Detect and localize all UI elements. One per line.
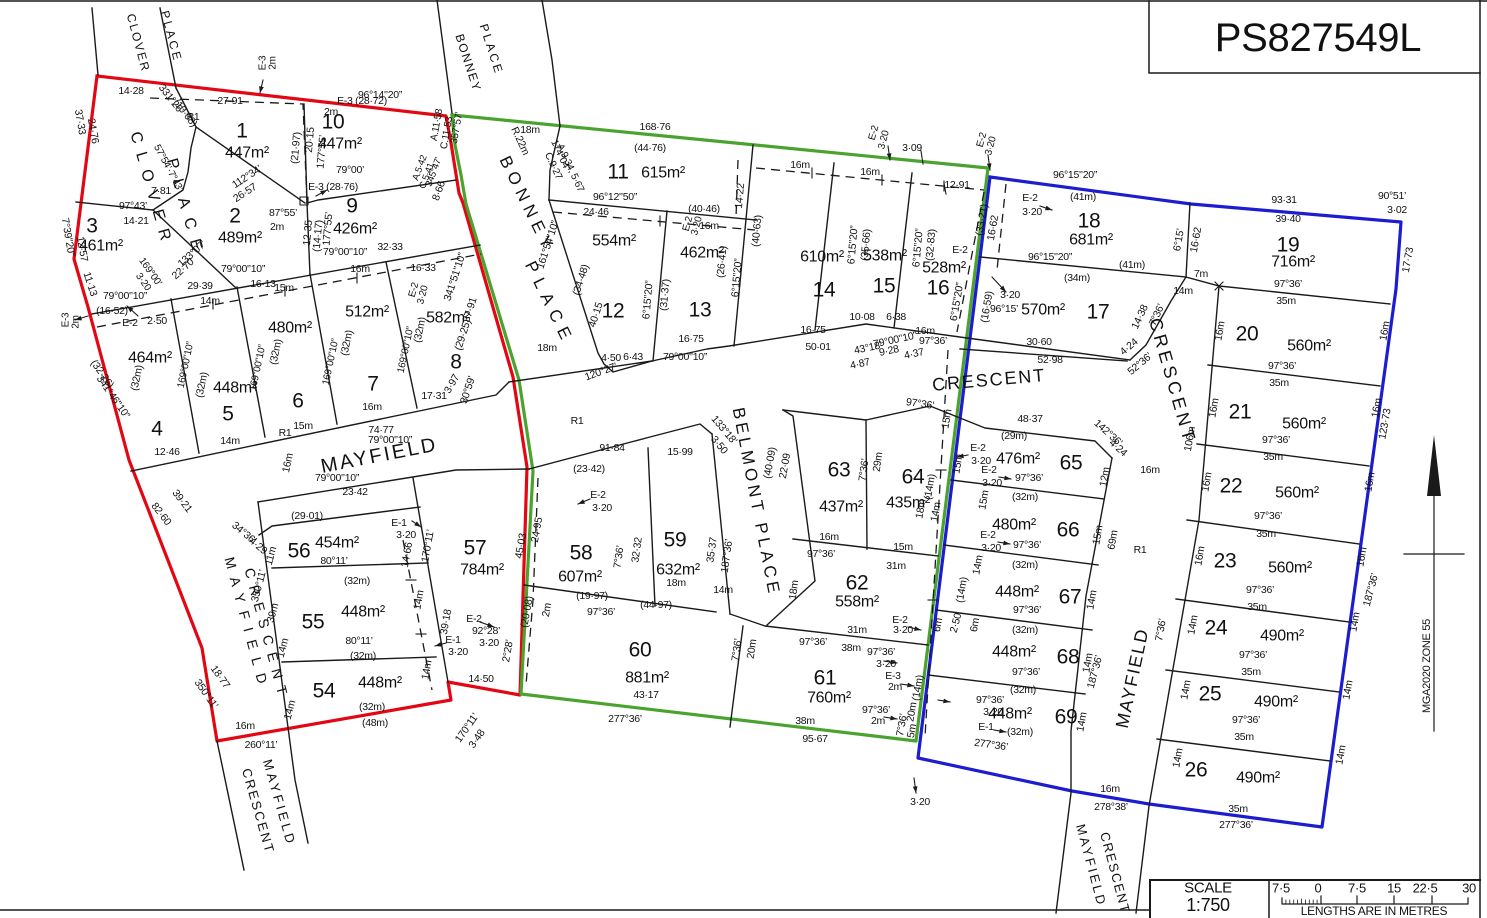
svg-text:27·91: 27·91: [217, 95, 243, 107]
svg-text:3·20: 3·20: [592, 502, 612, 514]
svg-text:278°38’: 278°38’: [1094, 801, 1128, 813]
svg-text:PS827549L: PS827549L: [1215, 16, 1421, 60]
svg-text:489m²: 489m²: [218, 230, 263, 247]
svg-text:(32m): (32m): [359, 701, 385, 713]
svg-text:6m: 6m: [968, 617, 982, 633]
svg-text:1:750: 1:750: [1186, 895, 1230, 915]
svg-text:15: 15: [1387, 881, 1401, 896]
svg-text:97°36’: 97°36’: [1246, 584, 1274, 596]
svg-text:E-2: E-2: [466, 613, 482, 625]
svg-text:6: 6: [292, 390, 303, 413]
svg-text:448m²: 448m²: [358, 675, 403, 692]
svg-text:448m²: 448m²: [341, 604, 386, 621]
svg-text:30: 30: [1462, 881, 1476, 896]
svg-text:(32m): (32m): [1010, 684, 1036, 696]
svg-text:3·20: 3·20: [983, 706, 1003, 718]
svg-text:15m: 15m: [274, 282, 294, 294]
svg-text:(32m): (32m): [344, 575, 370, 587]
svg-text:681m²: 681m²: [1069, 232, 1114, 249]
svg-text:21: 21: [1229, 401, 1252, 424]
svg-text:64: 64: [902, 466, 925, 489]
svg-text:16m: 16m: [1100, 783, 1120, 795]
svg-text:18m: 18m: [666, 577, 686, 589]
svg-text:32·33: 32·33: [377, 241, 403, 253]
svg-text:14·28: 14·28: [118, 85, 144, 97]
svg-text:16·75: 16·75: [800, 324, 826, 336]
svg-text:3·20: 3·20: [981, 542, 1001, 554]
svg-text:14·22: 14·22: [733, 182, 747, 209]
svg-text:96°15'’20”: 96°15'’20”: [1053, 169, 1098, 181]
svg-text:538m²: 538m²: [863, 248, 908, 265]
svg-text:(40·46): (40·46): [688, 203, 720, 215]
svg-text:480m²: 480m²: [268, 320, 313, 337]
svg-text:447m²: 447m²: [225, 145, 270, 162]
svg-text:3·20: 3·20: [1022, 206, 1042, 218]
svg-text:168·76: 168·76: [640, 121, 671, 133]
svg-text:54: 54: [313, 680, 336, 703]
svg-text:615m²: 615m²: [641, 165, 686, 182]
svg-text:35m: 35m: [1228, 803, 1248, 815]
svg-text:(48m): (48m): [362, 717, 388, 729]
svg-text:16m: 16m: [790, 159, 810, 171]
svg-text:17·31: 17·31: [421, 390, 447, 402]
svg-text:97°36’: 97°36’: [1262, 434, 1290, 446]
svg-text:454m²: 454m²: [315, 535, 360, 552]
svg-text:87°55’: 87°55’: [269, 207, 297, 219]
svg-text:R1: R1: [187, 111, 200, 123]
svg-text:96°12'’50”: 96°12'’50”: [593, 191, 638, 203]
svg-text:528m²: 528m²: [922, 260, 967, 277]
svg-text:490m²: 490m²: [1260, 628, 1305, 645]
svg-text:610m²: 610m²: [800, 249, 845, 266]
svg-text:16m: 16m: [235, 720, 255, 732]
svg-text:12·46: 12·46: [154, 446, 180, 458]
svg-text:6·38: 6·38: [886, 311, 906, 323]
svg-text:R1: R1: [1134, 544, 1147, 556]
svg-text:95·67: 95·67: [802, 733, 828, 745]
svg-text:(19·97): (19·97): [576, 590, 608, 602]
svg-text:2m: 2m: [268, 56, 279, 69]
svg-text:61: 61: [814, 667, 837, 690]
svg-text:2m: 2m: [888, 681, 903, 693]
svg-text:SCALE: SCALE: [1184, 880, 1232, 897]
svg-text:560m²: 560m²: [1268, 560, 1313, 577]
svg-text:7m: 7m: [1194, 268, 1209, 280]
svg-text:50·01: 50·01: [805, 341, 831, 353]
svg-text:4·50: 4·50: [601, 352, 621, 364]
svg-text:31m: 31m: [886, 560, 906, 572]
svg-text:43·17: 43·17: [633, 689, 659, 701]
svg-text:784m²: 784m²: [460, 562, 505, 579]
svg-text:60: 60: [629, 639, 652, 662]
svg-text:66: 66: [1057, 519, 1080, 542]
svg-text:92°28’: 92°28’: [472, 625, 500, 637]
svg-text:69: 69: [1055, 706, 1078, 729]
svg-text:30·60: 30·60: [1026, 336, 1052, 348]
svg-text:97°36’: 97°36’: [1232, 714, 1260, 726]
svg-text:79°00'’10”: 79°00'’10”: [103, 290, 148, 302]
svg-text:437m²: 437m²: [819, 499, 864, 516]
svg-text:59: 59: [664, 529, 687, 552]
svg-text:97°36’: 97°36’: [976, 694, 1004, 706]
svg-text:3·20: 3·20: [910, 796, 930, 808]
svg-text:448m²: 448m²: [992, 644, 1037, 661]
svg-text:2m: 2m: [71, 315, 82, 328]
svg-text:14m: 14m: [713, 584, 733, 596]
svg-text:480m²: 480m²: [992, 517, 1037, 534]
svg-text:3·20: 3·20: [982, 477, 1002, 489]
svg-text:26: 26: [1185, 759, 1208, 782]
svg-text:97°36’: 97°36’: [1274, 278, 1302, 290]
svg-text:97°36’: 97°36’: [1254, 510, 1282, 522]
svg-text:3·20: 3·20: [1000, 289, 1020, 301]
svg-text:607m²: 607m²: [558, 569, 603, 586]
svg-text:65: 65: [1060, 452, 1083, 475]
svg-text:35m: 35m: [1269, 377, 1289, 389]
svg-text:464m²: 464m²: [128, 350, 173, 367]
svg-text:16·33: 16·33: [410, 262, 436, 274]
svg-text:448m²: 448m²: [995, 584, 1040, 601]
svg-text:14m: 14m: [220, 435, 240, 447]
svg-text:E-2: E-2: [970, 442, 986, 454]
svg-text:560m²: 560m²: [1275, 485, 1320, 502]
svg-text:426m²: 426m²: [333, 221, 378, 238]
svg-text:7: 7: [367, 373, 378, 396]
svg-text:LENGTHS ARE IN METRES: LENGTHS ARE IN METRES: [1301, 904, 1448, 918]
svg-text:14m: 14m: [1173, 285, 1193, 297]
svg-text:11: 11: [607, 161, 628, 184]
svg-text:79°00'’10”: 79°00'’10”: [663, 351, 708, 363]
svg-text:9: 9: [346, 195, 357, 218]
svg-text:35m: 35m: [1234, 731, 1254, 743]
svg-text:2: 2: [229, 205, 240, 228]
svg-text:E-2: E-2: [122, 317, 138, 329]
svg-text:(29·01): (29·01): [291, 510, 323, 522]
svg-text:48·37: 48·37: [1017, 413, 1043, 425]
svg-text:490m²: 490m²: [1254, 694, 1299, 711]
svg-text:24: 24: [1205, 617, 1228, 640]
svg-text:570m²: 570m²: [1021, 302, 1066, 319]
svg-text:17: 17: [1087, 301, 1110, 324]
svg-text:97°36’: 97°36’: [1012, 666, 1040, 678]
svg-text:15: 15: [873, 275, 896, 298]
svg-text:80°11’: 80°11’: [345, 635, 372, 647]
svg-text:E-2: E-2: [1022, 192, 1038, 204]
svg-text:63: 63: [828, 459, 851, 482]
svg-text:716m²: 716m²: [1271, 254, 1316, 271]
svg-text:3: 3: [86, 215, 97, 238]
svg-text:558m²: 558m²: [835, 594, 880, 611]
svg-text:E-1: E-1: [391, 517, 407, 529]
svg-text:97°43’: 97°43’: [119, 200, 147, 212]
svg-text:E-3 (28·72): E-3 (28·72): [337, 95, 387, 107]
svg-text:90°51’: 90°51’: [1378, 190, 1406, 202]
svg-text:35m: 35m: [1247, 601, 1267, 613]
svg-text:MGA2020 ZONE 55: MGA2020 ZONE 55: [1421, 619, 1433, 713]
svg-text:632m²: 632m²: [656, 562, 701, 579]
svg-text:554m²: 554m²: [592, 233, 637, 250]
svg-text:3·20: 3·20: [479, 637, 499, 649]
svg-text:3·20: 3·20: [893, 624, 913, 636]
svg-text:(41m): (41m): [1070, 191, 1096, 203]
svg-text:7·81: 7·81: [151, 185, 171, 197]
svg-text:16m: 16m: [350, 263, 370, 275]
svg-text:R1: R1: [279, 427, 292, 439]
svg-text:E-2: E-2: [981, 464, 997, 476]
svg-text:760m²: 760m²: [807, 690, 852, 707]
svg-text:16·75: 16·75: [678, 333, 704, 345]
svg-text:35m: 35m: [1263, 451, 1283, 463]
svg-text:68: 68: [1057, 646, 1080, 669]
svg-text:79°00'’10”: 79°00'’10”: [221, 263, 266, 275]
svg-text:4: 4: [151, 418, 163, 441]
svg-text:10·08: 10·08: [849, 311, 875, 323]
svg-text:67: 67: [1059, 586, 1082, 609]
svg-text:39·40: 39·40: [1275, 213, 1301, 225]
svg-text:15·99: 15·99: [667, 446, 693, 458]
svg-text:560m²: 560m²: [1282, 416, 1327, 433]
svg-text:58: 58: [570, 542, 593, 565]
svg-text:12·91: 12·91: [944, 179, 970, 191]
svg-text:80°11’: 80°11’: [320, 555, 347, 567]
svg-text:E-2: E-2: [590, 489, 606, 501]
svg-text:(44·97): (44·97): [640, 599, 672, 611]
svg-text:96°15'’20”: 96°15'’20”: [1028, 251, 1073, 263]
svg-text:97°36’: 97°36’: [1013, 604, 1041, 616]
svg-text:97°36’: 97°36’: [1013, 539, 1041, 551]
svg-text:E-2: E-2: [952, 244, 968, 256]
svg-text:7·5: 7·5: [1348, 881, 1366, 896]
svg-text:97°36’: 97°36’: [919, 335, 947, 347]
svg-text:97°36’: 97°36’: [587, 606, 615, 618]
svg-text:476m²: 476m²: [996, 451, 1041, 468]
svg-text:(23·42): (23·42): [573, 463, 605, 475]
svg-text:38m: 38m: [841, 642, 861, 654]
svg-text:15m: 15m: [293, 420, 313, 432]
svg-text:62: 62: [846, 572, 869, 595]
svg-text:96°15’: 96°15’: [990, 303, 1018, 315]
svg-text:24·46: 24·46: [583, 206, 609, 218]
svg-text:14m: 14m: [200, 295, 220, 307]
svg-text:13: 13: [689, 299, 712, 322]
svg-text:(32m): (32m): [1012, 491, 1038, 503]
svg-text:277°36’: 277°36’: [1219, 819, 1253, 831]
svg-text:14·50: 14·50: [468, 673, 494, 685]
svg-text:3·09: 3·09: [902, 142, 922, 154]
svg-text:E-1: E-1: [445, 634, 461, 646]
svg-text:(32m): (32m): [1012, 559, 1038, 571]
svg-text:1: 1: [236, 120, 247, 143]
svg-text:(16·52): (16·52): [96, 305, 128, 317]
svg-text:93·31: 93·31: [1271, 194, 1297, 206]
svg-text:16·13: 16·13: [250, 278, 276, 290]
svg-text:512m²: 512m²: [345, 304, 390, 321]
svg-text:55: 55: [302, 611, 325, 634]
svg-text:277°36’: 277°36’: [608, 713, 642, 725]
svg-text:2m: 2m: [540, 602, 554, 618]
svg-text:91·84: 91·84: [599, 442, 625, 454]
svg-text:18: 18: [1078, 210, 1101, 233]
svg-text:881m²: 881m²: [625, 670, 670, 687]
svg-text:97°36’: 97°36’: [1015, 472, 1043, 484]
svg-text:97°36’: 97°36’: [807, 548, 835, 560]
svg-text:12: 12: [602, 300, 625, 323]
svg-text:6·43: 6·43: [623, 351, 643, 363]
svg-text:(32m): (32m): [1007, 726, 1033, 738]
svg-text:35m: 35m: [1256, 528, 1276, 540]
svg-text:97°36’: 97°36’: [1239, 649, 1267, 661]
svg-text:35m: 35m: [1241, 666, 1261, 678]
svg-text:490m²: 490m²: [1236, 770, 1281, 787]
svg-text:5m: 5m: [905, 723, 919, 739]
svg-text:35m: 35m: [1276, 295, 1296, 307]
svg-text:97°36’: 97°36’: [1268, 360, 1296, 372]
svg-text:79°00'’10”: 79°00'’10”: [368, 434, 413, 446]
svg-text:25: 25: [1199, 683, 1222, 706]
svg-text:16m: 16m: [819, 531, 839, 543]
svg-text:79°00'’10”: 79°00'’10”: [323, 246, 368, 258]
svg-text:79°00’: 79°00’: [336, 164, 364, 176]
svg-text:(32m): (32m): [350, 650, 376, 662]
svg-text:2m: 2m: [871, 715, 886, 727]
svg-text:20: 20: [1236, 323, 1259, 346]
svg-text:6m: 6m: [931, 617, 945, 633]
svg-text:0: 0: [1315, 881, 1322, 896]
svg-text:56: 56: [288, 540, 311, 563]
svg-text:52·98: 52·98: [1037, 354, 1063, 366]
svg-text:(34m): (34m): [1064, 272, 1090, 284]
svg-text:5: 5: [222, 403, 233, 426]
svg-text:31m: 31m: [847, 624, 867, 636]
svg-text:16m: 16m: [1140, 464, 1160, 476]
svg-text:R1: R1: [571, 415, 584, 427]
svg-text:3·20: 3·20: [396, 529, 416, 541]
svg-text:15m: 15m: [893, 541, 913, 553]
svg-text:16m: 16m: [362, 401, 382, 413]
svg-text:E-1: E-1: [978, 721, 994, 733]
svg-text:22: 22: [1220, 475, 1243, 498]
svg-text:18m: 18m: [537, 342, 557, 354]
svg-text:10: 10: [322, 111, 345, 134]
svg-text:(32m): (32m): [1012, 624, 1038, 636]
svg-text:22·5: 22·5: [1413, 881, 1438, 896]
svg-text:14: 14: [813, 279, 836, 302]
svg-text:14·21: 14·21: [123, 215, 149, 227]
svg-text:(44·76): (44·76): [634, 142, 666, 154]
svg-text:(41m): (41m): [1119, 259, 1145, 271]
svg-text:97°36’: 97°36’: [799, 636, 827, 648]
svg-text:29·39: 29·39: [187, 280, 213, 292]
svg-text:3·20: 3·20: [876, 658, 896, 670]
svg-text:3·02: 3·02: [1387, 204, 1407, 216]
svg-text:E-3 (28·76): E-3 (28·76): [308, 181, 358, 193]
svg-text:79°00'’10”: 79°00'’10”: [315, 472, 360, 484]
svg-text:20·15: 20·15: [303, 126, 317, 153]
svg-text:2m: 2m: [270, 221, 285, 233]
svg-text:560m²: 560m²: [1287, 338, 1332, 355]
svg-text:23: 23: [1214, 550, 1237, 573]
svg-text:7·5: 7·5: [1272, 881, 1290, 896]
svg-text:16m: 16m: [860, 166, 880, 178]
svg-text:260°11’: 260°11’: [245, 739, 278, 751]
svg-text:97°36’: 97°36’: [867, 646, 895, 658]
svg-text:57: 57: [464, 537, 487, 560]
svg-text:23·42: 23·42: [342, 486, 368, 498]
svg-text:447m²: 447m²: [318, 136, 363, 153]
svg-text:8: 8: [450, 351, 461, 374]
svg-text:16: 16: [927, 277, 950, 300]
svg-text:2·50: 2·50: [147, 315, 167, 327]
svg-text:3·20: 3·20: [448, 646, 468, 658]
svg-text:38m: 38m: [795, 715, 815, 727]
svg-text:E-2: E-2: [980, 529, 996, 541]
svg-text:(29m): (29m): [1001, 430, 1027, 442]
